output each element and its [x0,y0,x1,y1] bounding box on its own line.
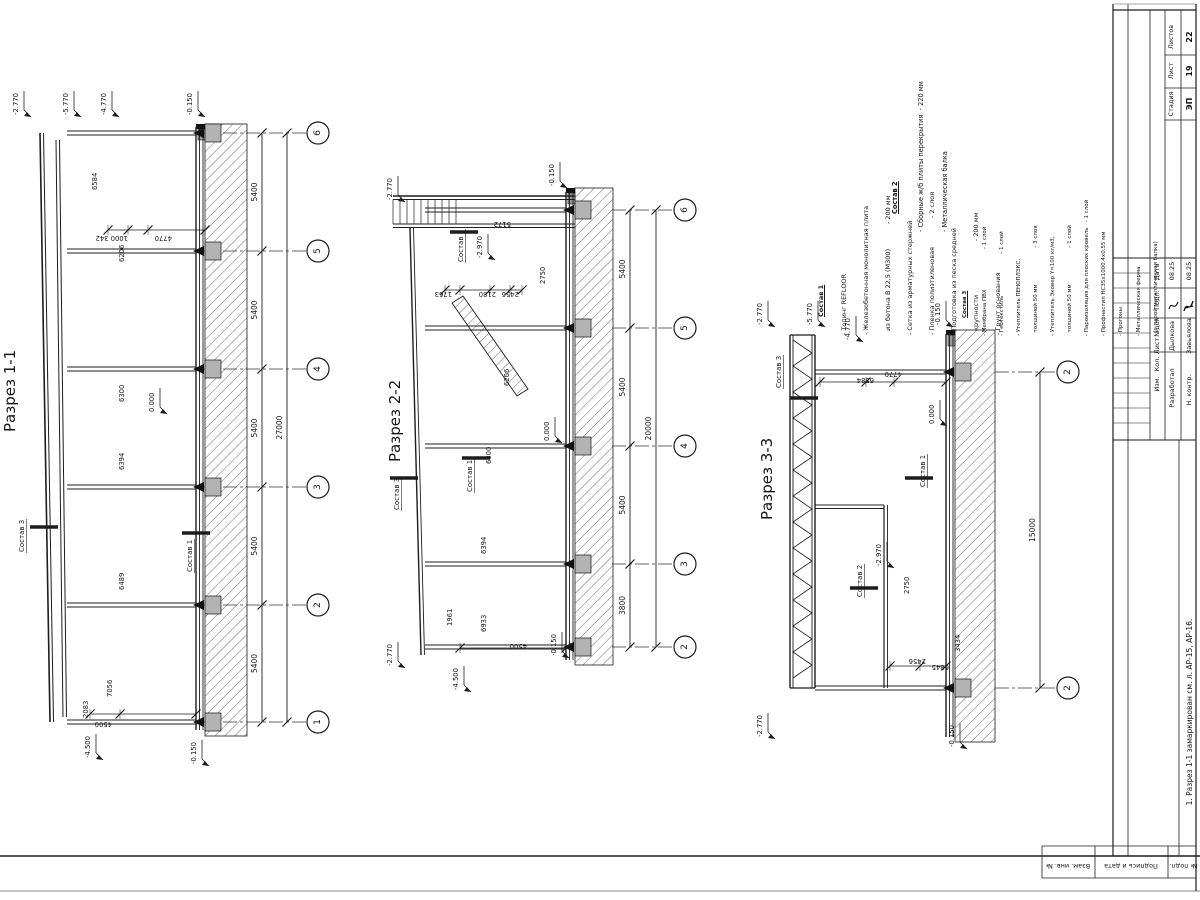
dim-label: 6584 [857,376,874,384]
dim-label: 4500 [510,642,527,650]
sostav-label: Состав 3 [393,478,401,510]
elevation-mark: -4.500 [452,668,460,690]
elevation-mark: -4.500 [84,736,92,758]
foundation-pad [575,437,591,455]
sheet-note: 1. Разрез 1-1 замаркирован см. л. АР-15,… [1183,587,1195,837]
axis-number: 4 [680,443,690,449]
elevation-mark: -2.970 [476,236,484,258]
section-title: Разрез 3-3 [758,438,776,520]
anchor-wedge [563,323,574,333]
sostav-label: Состав 1 [919,455,927,487]
elevation-mark: 0.000 [543,422,551,441]
bay-dimension: 5400 [250,654,259,673]
dim-label: 2083 [82,701,90,718]
anchor-wedge [563,441,574,451]
anchor-wedge [563,559,574,569]
foundation-pad [575,555,591,573]
axis-number: 5 [313,248,323,254]
axis-number: 6 [680,207,690,213]
anchor-wedge [193,482,204,492]
dim-label: 6394 [118,453,126,470]
bay-dimension: 3800 [618,596,627,615]
elevation-mark: -2.970 [875,544,883,566]
dim-label: 1000 342 [96,234,128,242]
dim-label: 6394 [480,537,488,554]
note-title: Состав 2 [891,86,899,214]
axis-number: 3 [313,484,323,490]
dim-label: 1763 [435,290,452,298]
developed-date: 08.25 [1166,226,1178,316]
elevation-mark: 0.000 [928,405,936,424]
note-title: Состав 3 [963,86,969,318]
dim-label: 2456 [909,657,926,665]
anchor-wedge [943,683,954,693]
braced-member [452,296,528,396]
axis-number: 5 [680,325,690,331]
note-line: - Сборные ж/б плиты перекрытия - 220 мм [917,86,925,232]
dim-label: 5172 [494,220,511,228]
note-line: - Прогоны [1119,86,1125,336]
elevation-mark: -0.150 [550,634,558,656]
note-line: толщиной 50 мм - 3 слоя [1034,86,1040,336]
dim-label: 6300 [118,385,126,402]
note-line: - Железобетонная монолитная плита [863,85,870,335]
note-line: - Профнастил НС35х1000.4х0,55 мм [1102,86,1108,336]
elevation-mark: -2.770 [756,715,764,737]
bay-dimension: 5400 [618,259,627,278]
ground-hatch [575,188,613,665]
sostav-label: Состав 3 [775,356,783,388]
note-line: - Металлическая балка [941,86,949,232]
dim-label: 6489 [118,573,126,590]
elevation-mark: -2.770 [386,178,394,200]
anchor-wedge [193,717,204,727]
section-title: Разрез 1-1 [1,350,19,432]
foundation-pad [955,679,971,697]
total-dimension: 27000 [275,415,284,439]
anchor-wedge [193,364,204,374]
elevation-mark: -2.770 [756,303,764,325]
sostav-label: Состав 2 [457,230,465,262]
foundation-pad [575,319,591,337]
axis-number: 1 [313,719,323,725]
elevation-mark: -0.150 [948,725,956,747]
elevation-mark: -2.770 [12,93,20,115]
note-title: Состав 1 [818,85,825,317]
total-dimension: 20000 [644,416,653,440]
axis-number: 4 [313,366,323,372]
dim-label: 4770 [155,234,172,242]
axis-number: 2 [1063,369,1073,375]
foundation-pad [205,360,221,378]
anchor-wedge [193,246,204,256]
elevation-mark: -0.150 [186,93,194,115]
sostav-label: Состав 3 [18,520,26,552]
dim-label: 4500 [95,720,112,728]
elevation-mark: -0.150 [190,742,198,764]
parapet-cap [566,188,575,193]
bay-dimension: 5400 [250,182,259,201]
dim-label: 2750 [903,577,911,594]
truss-web [793,340,812,678]
foundation-pad [205,713,221,731]
note-line: - Мембрана ПВХ - 1 слой [983,86,989,336]
dim-label: 6300 [485,447,493,464]
dim-label: 2456 [502,290,519,298]
axis-number: 3 [680,561,690,567]
drawing-sheet: 6543215400540054005400540027000-2.770-5.… [0,0,1200,900]
ground-hatch [205,124,247,736]
frame-col-inv-podl: Инв. № подл. [1152,860,1200,872]
col-izm: Изм. [1151,339,1163,429]
dim-label: 4770 [885,370,902,378]
sheets-total: 22 [1183,0,1195,82]
section-2-2: 65432540054005400380020000-2.770-0.150-2… [386,162,696,692]
elevation-mark: -4.770 [100,93,108,115]
axis-number: 2 [1063,685,1073,691]
sostav-label: Состав 2 [856,565,864,597]
foundation-pad [575,638,591,656]
dim-label: 6933 [480,615,488,632]
dim-label: 6584 [91,173,99,190]
bay-dimension: 5400 [250,536,259,555]
note-line: - Топинг REFLOOR [841,85,848,335]
dim-label: 6206 [503,369,511,386]
foundation-pad [205,242,221,260]
anchor-wedge [193,600,204,610]
section-title: Разрез 2-2 [386,380,404,462]
sostav-label: Состав 1 [466,460,474,492]
anchor-wedge [563,205,574,215]
dim-label: 7056 [106,680,114,697]
dim-label: 6206 [118,245,126,262]
axis-number: 2 [313,602,323,608]
elevation-mark: -0.150 [548,164,556,186]
elevation-mark: -2.770 [386,644,394,666]
total-dimension: 15000 [1028,518,1037,542]
section-3-3: 2215000-2.770-5.770-4.770-0.150-2.770-0.… [756,301,1079,749]
dim-label: 3434 [954,635,962,652]
note-line: - Пароизоляция для плоских кровель - 1 с… [1085,86,1091,336]
foundation-pad [205,478,221,496]
dim-label: 6845 [932,663,949,671]
note-line: - Геотекстиль - 1 слой [1000,86,1006,336]
checked-date: 08.25 [1183,226,1195,316]
elevation-mark: -5.770 [62,93,70,115]
note-line: - Утеплитель Эковер Y=100 кг/м3, [1051,86,1057,336]
dim-label: 2180 [479,290,496,298]
note-line: - Утеплитель ПЕНОПЛЭКС, [1017,86,1023,336]
dim-label: 1961 [446,609,454,626]
foundation-pad [205,124,221,142]
axis-number: 6 [313,130,323,136]
sostav-label: Состав 1 [186,540,194,572]
elevation-mark: 0.000 [148,393,156,412]
sheets-label: Листов [1165,0,1177,82]
bay-dimension: 5400 [618,377,627,396]
bay-dimension: 5400 [250,418,259,437]
foundation-pad [575,201,591,219]
foundation-pad [205,596,221,614]
anchor-wedge [943,367,954,377]
note-line: - Металлическая ферма [1137,86,1143,336]
bay-dimension: 5400 [250,300,259,319]
section-1-1: 6543215400540054005400540027000-2.770-5.… [1,91,329,766]
note-line: толщиной 50 мм - 1 слой [1068,86,1074,336]
foundation-pad [955,363,971,381]
note-block-sostav-3: Состав 3 - Мембрана ПВХ - 1 слой - Геоте… [952,86,1171,336]
anchor-wedge [563,642,574,652]
bay-dimension: 5400 [618,495,627,514]
axis-number: 2 [680,644,690,650]
dim-label: 2750 [539,267,547,284]
